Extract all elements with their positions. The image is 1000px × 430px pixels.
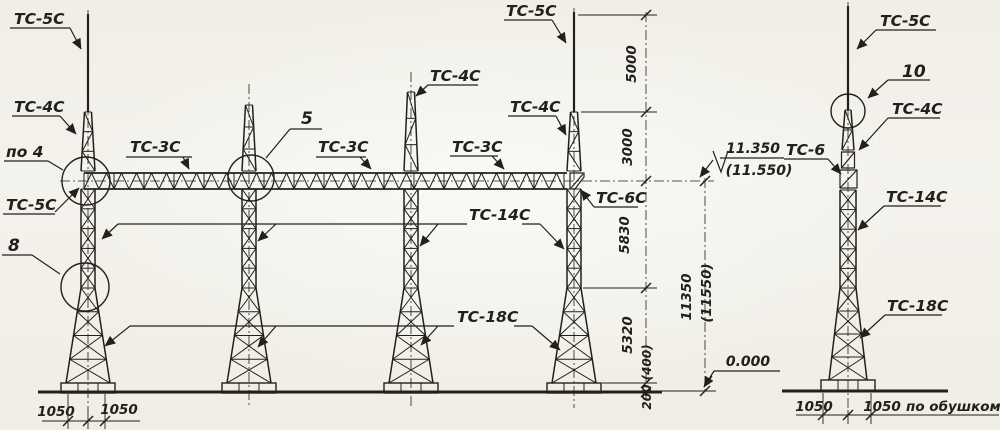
label-tc5c-tower1-lower: ТС-5С <box>6 196 57 214</box>
label-tc4c-right: ТС-4С <box>892 100 943 118</box>
label-tc6-right: ТС-6 <box>786 141 825 159</box>
label-node10: 10 <box>902 62 926 82</box>
label-tc3c-beam3: ТС-3С <box>452 138 503 156</box>
callout-circle-node8 <box>61 263 109 311</box>
label-tc14c-main: ТС-14С <box>469 206 531 224</box>
label-tc14c-right: ТС-14С <box>886 188 948 206</box>
label-tc3c-beam1: ТС-3С <box>130 138 181 156</box>
lightning-rods <box>88 6 848 112</box>
label-tc4c-tower3: ТС-4С <box>430 67 481 85</box>
dim-5000: 5000 <box>624 45 640 83</box>
blueprint-scan: ТС-5С ТС-4С по 4 ТС-5С 8 ТС-3С 5 ТС-3С Т… <box>0 0 1000 430</box>
dim-5830: 5830 <box>617 216 633 254</box>
dim-1050-right-b: 1050 <box>863 399 901 415</box>
dim-200-400: 200 (400) <box>640 344 654 409</box>
label-node8: 8 <box>8 236 20 256</box>
dim-11550: (11550) <box>699 263 715 322</box>
label-node5: 5 <box>301 109 313 129</box>
label-tc4c-tower1: ТС-4С <box>14 98 65 116</box>
base-note: по обушком <box>906 399 1000 415</box>
dim-3000: 3000 <box>620 128 636 166</box>
dim-1050-left-b: 1050 <box>100 402 138 418</box>
dim-1050-left-a: 1050 <box>37 404 75 420</box>
label-tc18c-right: ТС-18С <box>887 297 949 315</box>
label-tc18c-main: ТС-18С <box>457 308 519 326</box>
label-tc6c-support: ТС-6С <box>596 189 647 207</box>
dim-1050-right-a: 1050 <box>795 399 833 415</box>
label-node4: по 4 <box>6 143 44 161</box>
label-tc3c-beam2: ТС-3С <box>318 138 369 156</box>
label-tc5c-right: ТС-5С <box>880 12 931 30</box>
substation-portal-elevation-drawing: ТС-5С ТС-4С по 4 ТС-5С 8 ТС-3С 5 ТС-3С Т… <box>0 0 1000 430</box>
label-tc4c-tower4: ТС-4С <box>510 98 561 116</box>
dim-5320: 5320 <box>620 316 636 354</box>
label-tc5c-tower1: ТС-5С <box>14 10 65 28</box>
elevation-top: 11.350 <box>726 141 780 157</box>
elevation-zero: 0.000 <box>726 354 771 370</box>
detail-callouts <box>61 94 865 311</box>
label-tc5c-tower4: ТС-5С <box>506 2 557 20</box>
elevation-top-alt: (11.550) <box>726 163 793 179</box>
tc6-insert-blocks <box>840 152 857 188</box>
dim-11350: 11350 <box>679 274 695 321</box>
centerlines <box>60 2 848 410</box>
ground-lines <box>38 391 948 392</box>
